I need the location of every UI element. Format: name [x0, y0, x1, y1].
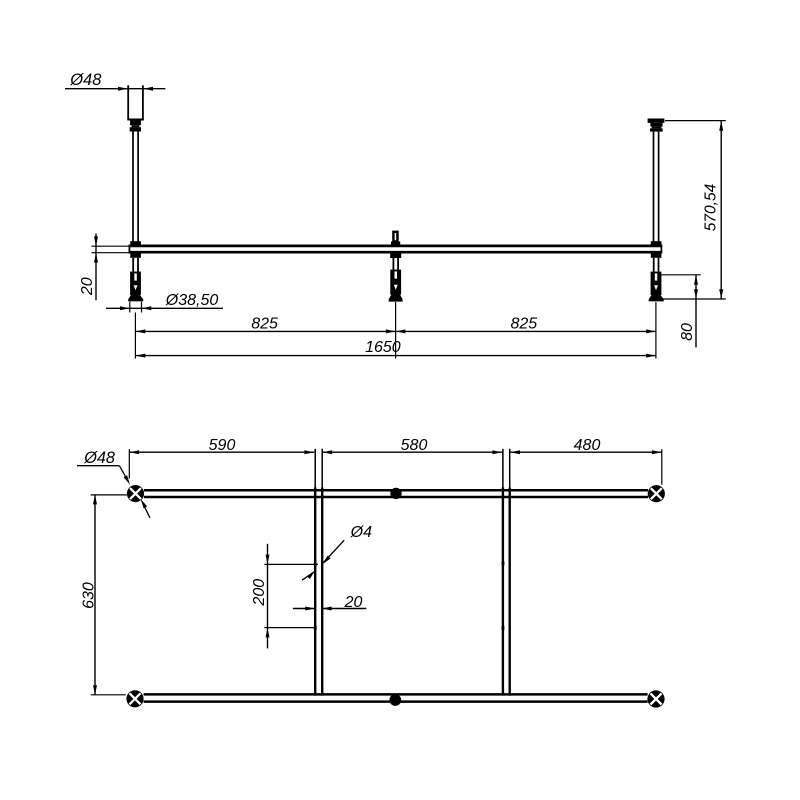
svg-text:20: 20	[344, 594, 363, 611]
svg-text:Ø48: Ø48	[69, 71, 102, 89]
svg-text:200: 200	[251, 579, 268, 607]
svg-text:Ø38,50: Ø38,50	[165, 292, 219, 309]
svg-text:570,54: 570,54	[702, 183, 719, 231]
svg-text:80: 80	[679, 323, 696, 341]
svg-text:Ø4: Ø4	[350, 524, 372, 541]
svg-text:Ø48: Ø48	[83, 449, 115, 467]
svg-text:630: 630	[81, 582, 98, 609]
svg-text:825: 825	[510, 315, 537, 332]
svg-text:480: 480	[574, 437, 601, 454]
svg-text:590: 590	[209, 437, 236, 454]
svg-text:20: 20	[79, 277, 96, 296]
svg-text:825: 825	[251, 315, 278, 332]
svg-text:580: 580	[401, 437, 428, 454]
